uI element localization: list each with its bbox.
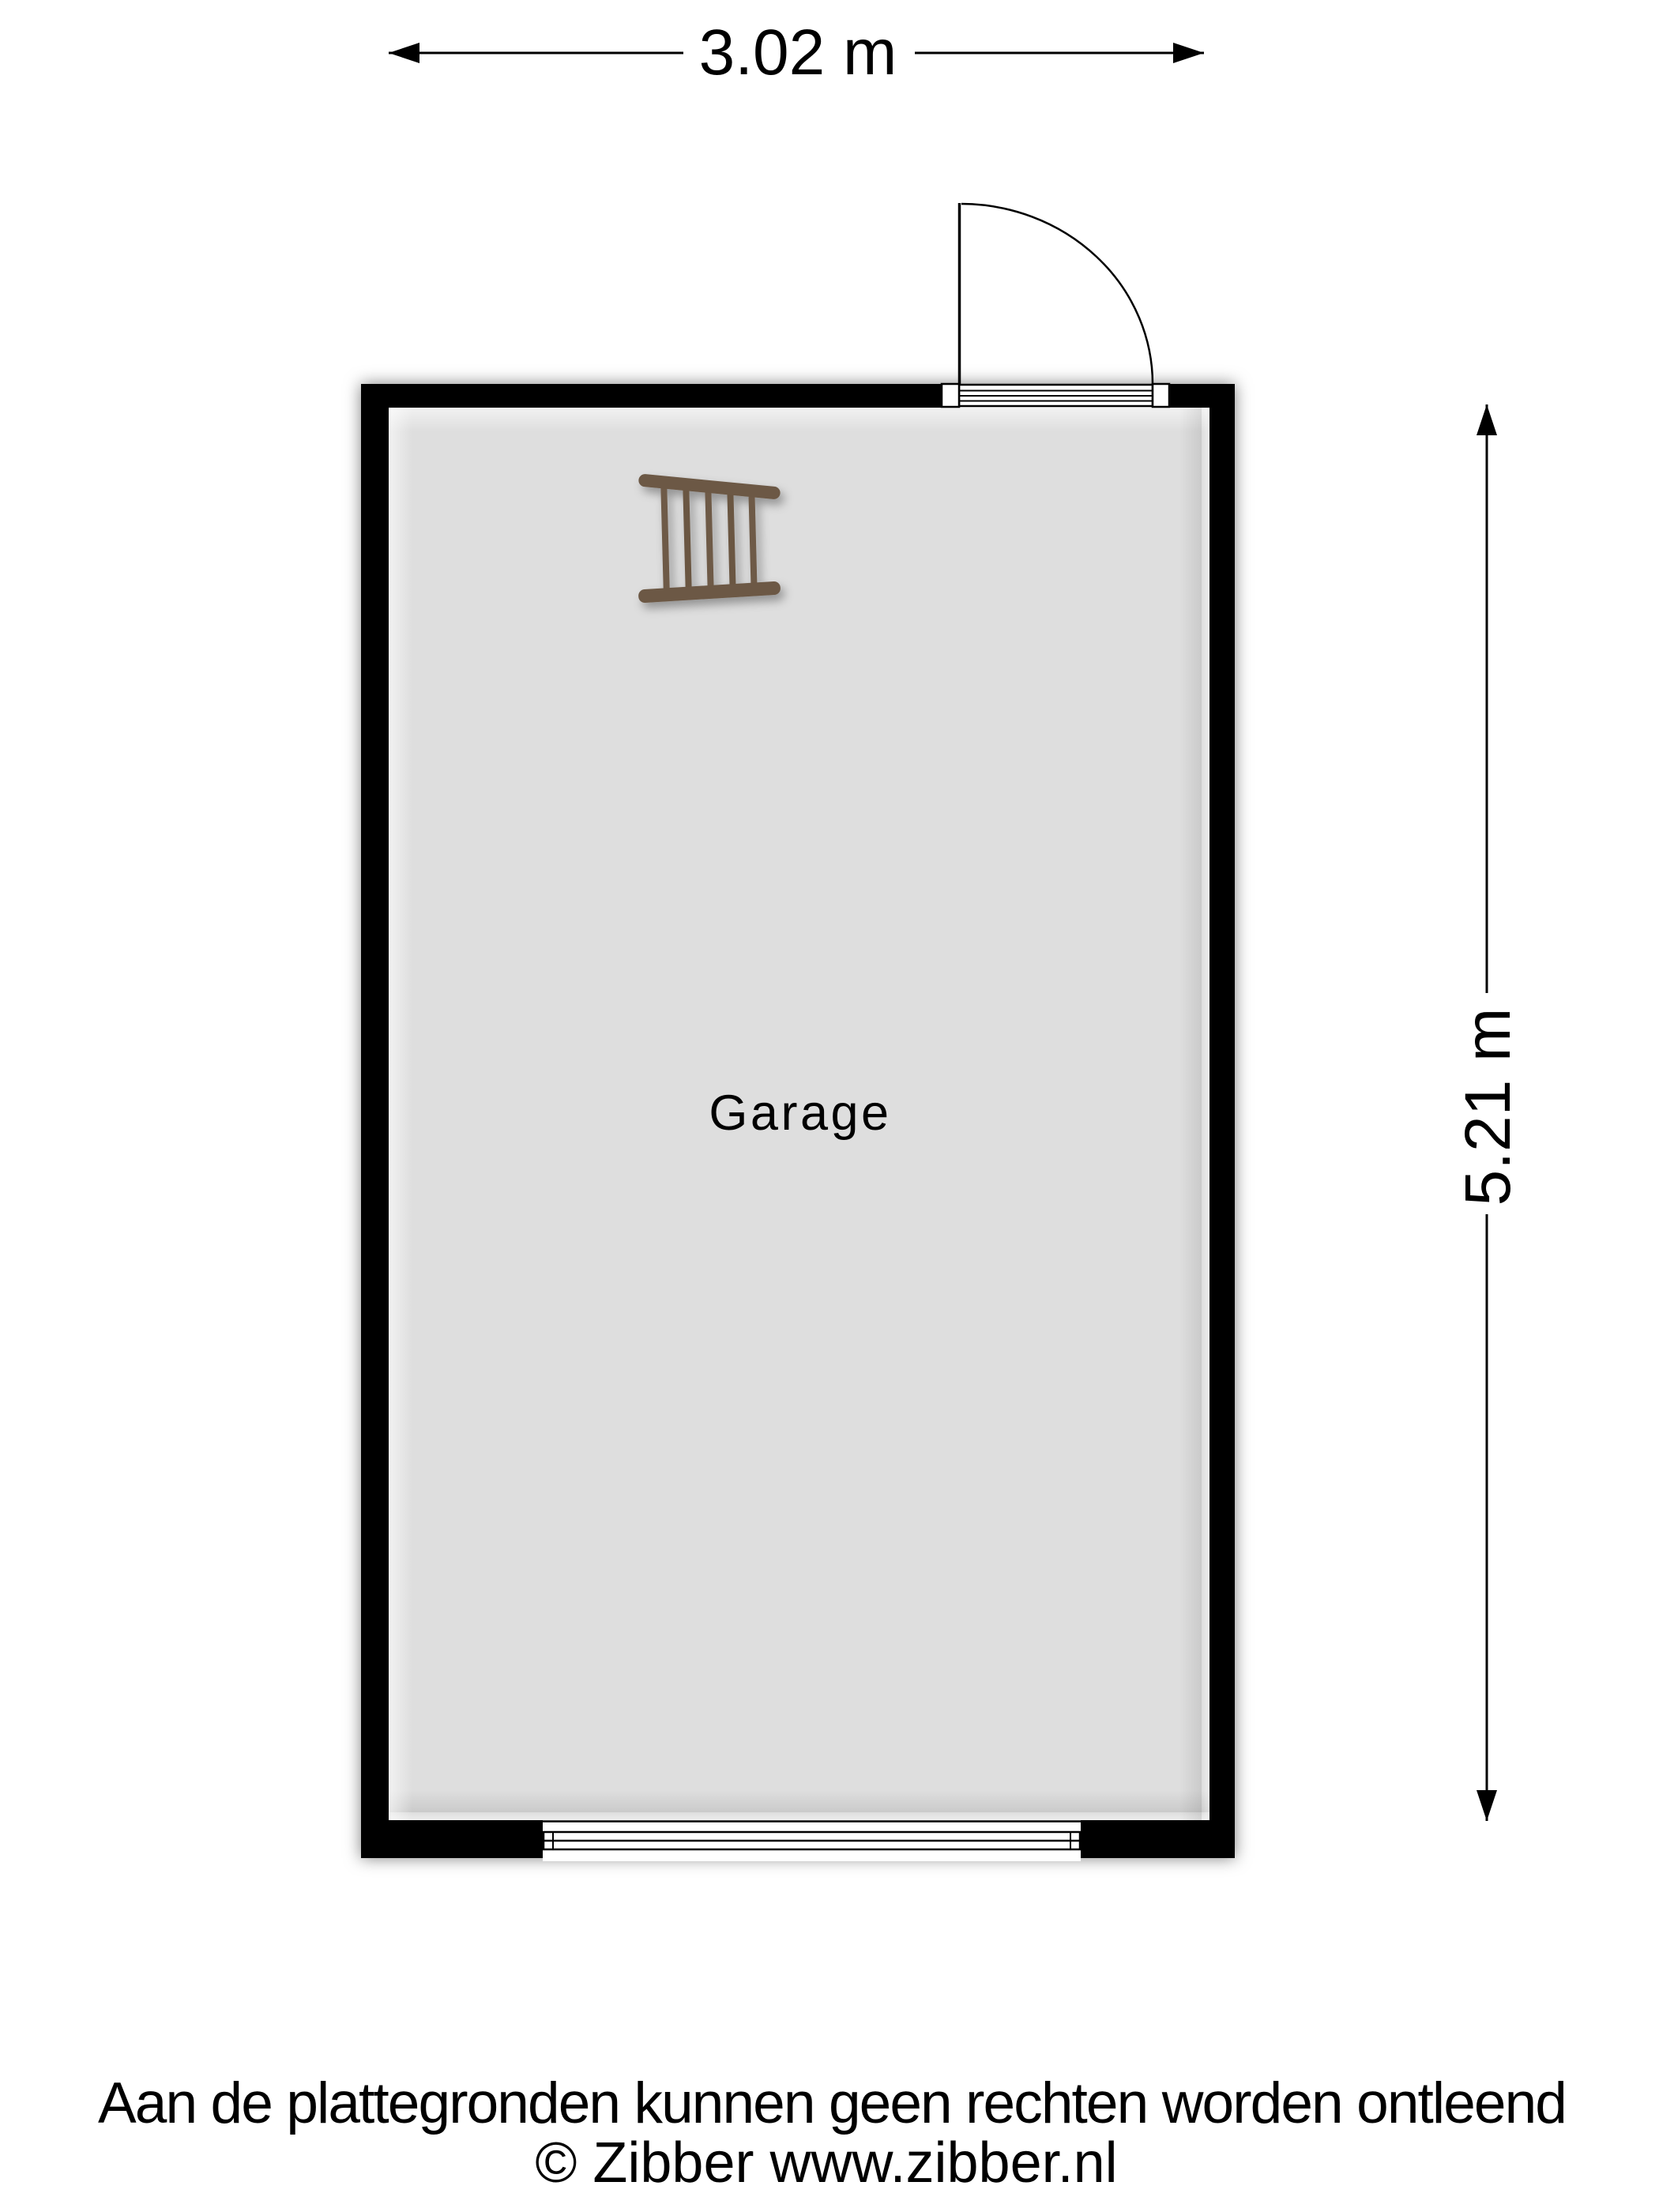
svg-text:Garage: Garage [709, 1085, 891, 1141]
svg-text:3.02 m: 3.02 m [699, 17, 897, 88]
svg-text:Aan de plattegronden kunnen ge: Aan de plattegronden kunnen geen rechten… [98, 2071, 1566, 2135]
svg-text:5.21 m: 5.21 m [1452, 1008, 1524, 1206]
svg-text:© Zibber www.zibber.nl: © Zibber www.zibber.nl [535, 2131, 1117, 2195]
